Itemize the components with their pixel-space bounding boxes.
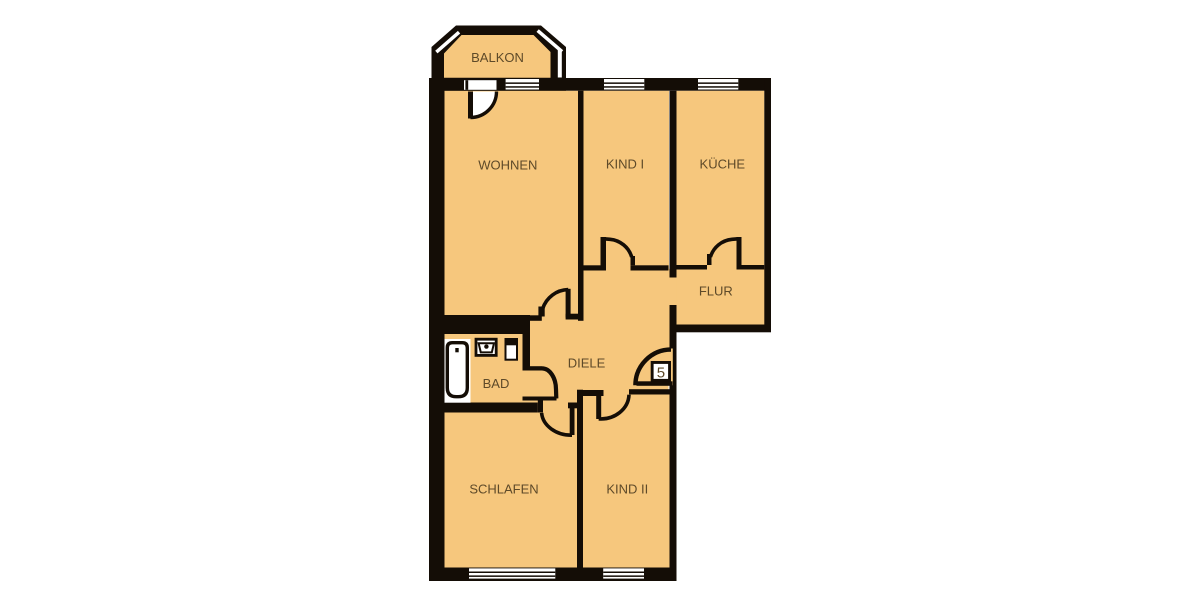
svg-text:KIND I: KIND I xyxy=(606,157,644,172)
svg-text:SCHLAFEN: SCHLAFEN xyxy=(469,482,538,497)
svg-text:5: 5 xyxy=(657,365,665,382)
svg-text:WOHNEN: WOHNEN xyxy=(478,158,537,173)
svg-text:KIND II: KIND II xyxy=(606,482,648,497)
svg-text:FLUR: FLUR xyxy=(699,284,733,299)
svg-text:DIELE: DIELE xyxy=(568,355,606,370)
svg-text:KÜCHE: KÜCHE xyxy=(700,157,746,172)
svg-text:BALKON: BALKON xyxy=(471,50,524,65)
svg-text:BAD: BAD xyxy=(483,376,510,391)
